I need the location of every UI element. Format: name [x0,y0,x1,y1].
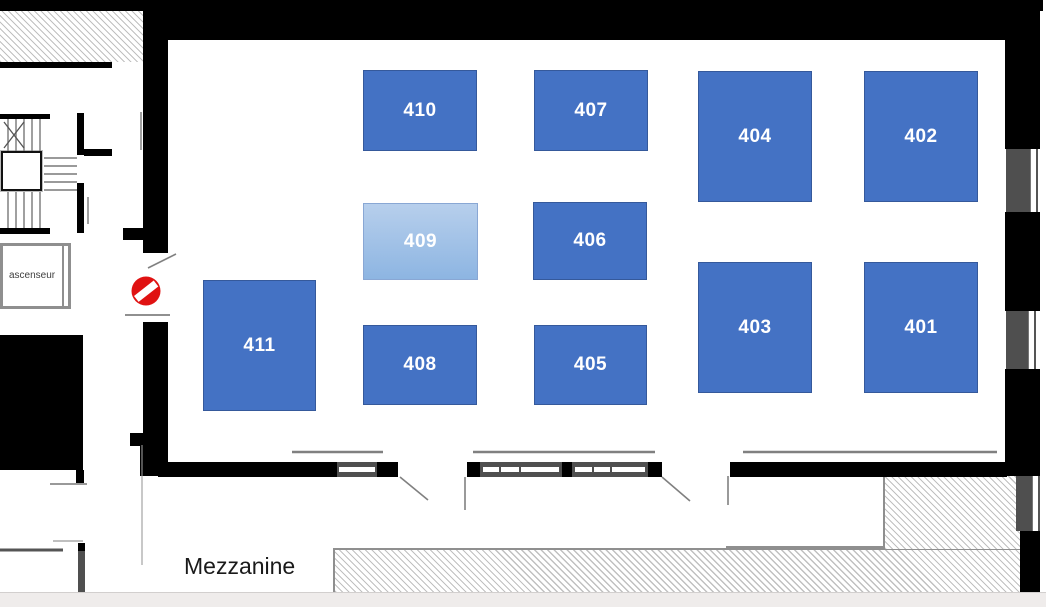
hatch-area-mezzanine-strip [333,548,1020,592]
room-label: 405 [574,354,607,376]
window-glass-2 [1028,311,1036,369]
wall-corridor-stub-upper [123,228,143,240]
room-label: 403 [738,317,771,339]
window-bottom-strip [0,592,1046,607]
room-label: 411 [243,335,275,357]
wall-bl-pier [78,551,85,592]
glazing-divider [499,467,501,472]
no-entry-icon [132,277,161,306]
glazing-divider [519,467,521,472]
wall-stair-right-lower [77,183,84,233]
wall-bottom-segment-a [158,462,337,477]
wall-stair-stub [84,149,112,156]
wall-stair-top [0,114,50,119]
room-label: 401 [904,317,937,339]
wall-right-bottom [1020,531,1040,592]
room-label: 409 [404,231,437,253]
wall-corridor-lower [143,322,168,445]
hatch-area-bottom-right [885,475,1020,549]
glazing-divider [592,467,594,472]
wall-bl-corner [78,543,85,551]
room-box-408[interactable]: 408 [363,325,477,405]
room-label: 404 [738,126,771,148]
room-box-405[interactable]: 405 [534,325,647,405]
stair-direction-mark [4,122,24,148]
room-box-410[interactable]: 410 [363,70,477,151]
window-glass-1 [1030,149,1038,212]
elevator-shaft-line [62,243,64,309]
door-post-b2 [562,462,572,477]
window-panel-3 [1016,476,1032,531]
wall-under-hatch [0,62,112,68]
wall-top-main [143,11,1040,40]
room-box-411[interactable]: 411 [203,280,316,411]
room-box-403[interactable]: 403 [698,262,812,393]
wall-block-tail [76,470,84,483]
door-post-b1 [467,462,480,477]
room-box-406[interactable]: 406 [533,202,647,280]
wall-bottom-segment-c [730,462,1007,477]
wall-block-lower-left [0,335,83,470]
window-panel-2 [1006,311,1028,369]
wall-corridor-upper [143,11,168,253]
wall-right-mid [1005,212,1040,311]
door-post-a [377,462,398,477]
glazing-divider [610,467,612,472]
room-label: 407 [574,100,607,122]
mezzanine-label: Mezzanine [184,553,295,580]
wall-top-strip [0,0,1043,11]
room-label: 408 [403,354,436,376]
room-box-409-highlighted[interactable]: 409 [363,203,478,280]
floor-plan-canvas: ascenseur 401 402 403 404 405 406 407 [0,0,1046,607]
room-label: 406 [573,230,606,252]
window-glass-3 [1032,476,1040,531]
room-box-402[interactable]: 402 [864,71,978,202]
stair-landing [1,151,42,191]
glazed-slot-a [339,467,375,472]
room-box-404[interactable]: 404 [698,71,812,202]
window-panel-1 [1006,149,1030,212]
wall-right-bottom-junction [1005,462,1040,476]
mezzanine-void [726,477,885,548]
room-label: 402 [904,126,937,148]
hatch-area-top-left [0,11,143,62]
wall-right-lower [1005,369,1040,462]
wall-stair-bottom [0,228,50,234]
room-box-401[interactable]: 401 [864,262,978,393]
wall-right-upper [1005,11,1040,149]
wall-stair-right-upper [77,113,84,155]
elevator-room: ascenseur [0,243,71,309]
glazed-slot-b1 [483,467,559,472]
room-box-407[interactable]: 407 [534,70,648,151]
room-label: 410 [403,100,436,122]
elevator-label: ascenseur [9,270,55,281]
door-post-b3 [648,462,662,477]
